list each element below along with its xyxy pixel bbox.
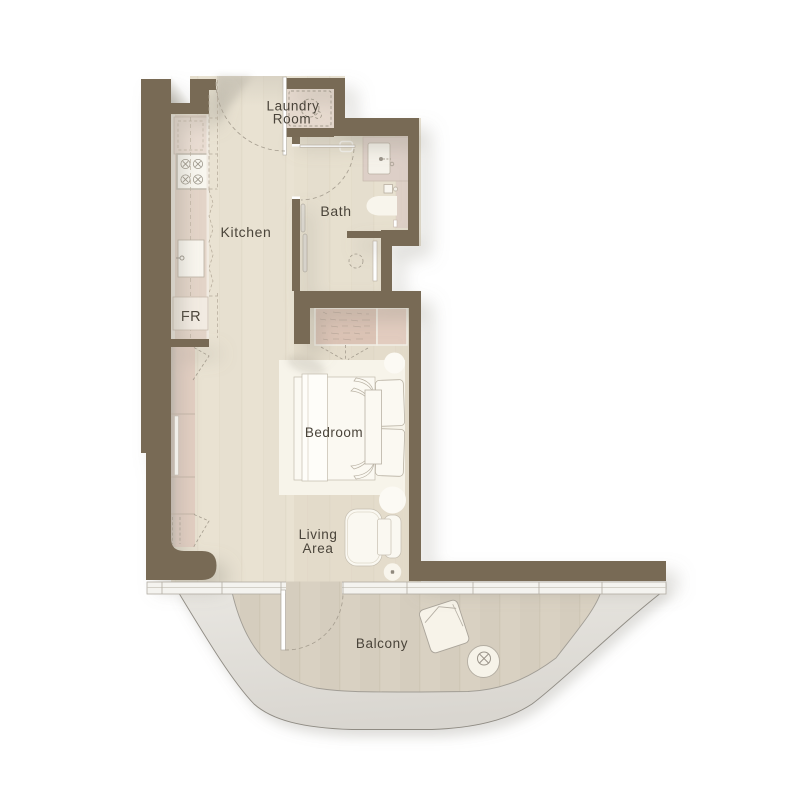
svg-text:Bath: Bath — [320, 203, 351, 219]
svg-text:Area: Area — [303, 541, 334, 556]
svg-text:Balcony: Balcony — [356, 636, 408, 651]
svg-text:Living: Living — [299, 527, 338, 542]
svg-text:Bedroom: Bedroom — [305, 425, 363, 440]
svg-text:FR: FR — [181, 309, 201, 325]
svg-text:Room: Room — [273, 112, 311, 127]
svg-text:Kitchen: Kitchen — [221, 224, 272, 240]
